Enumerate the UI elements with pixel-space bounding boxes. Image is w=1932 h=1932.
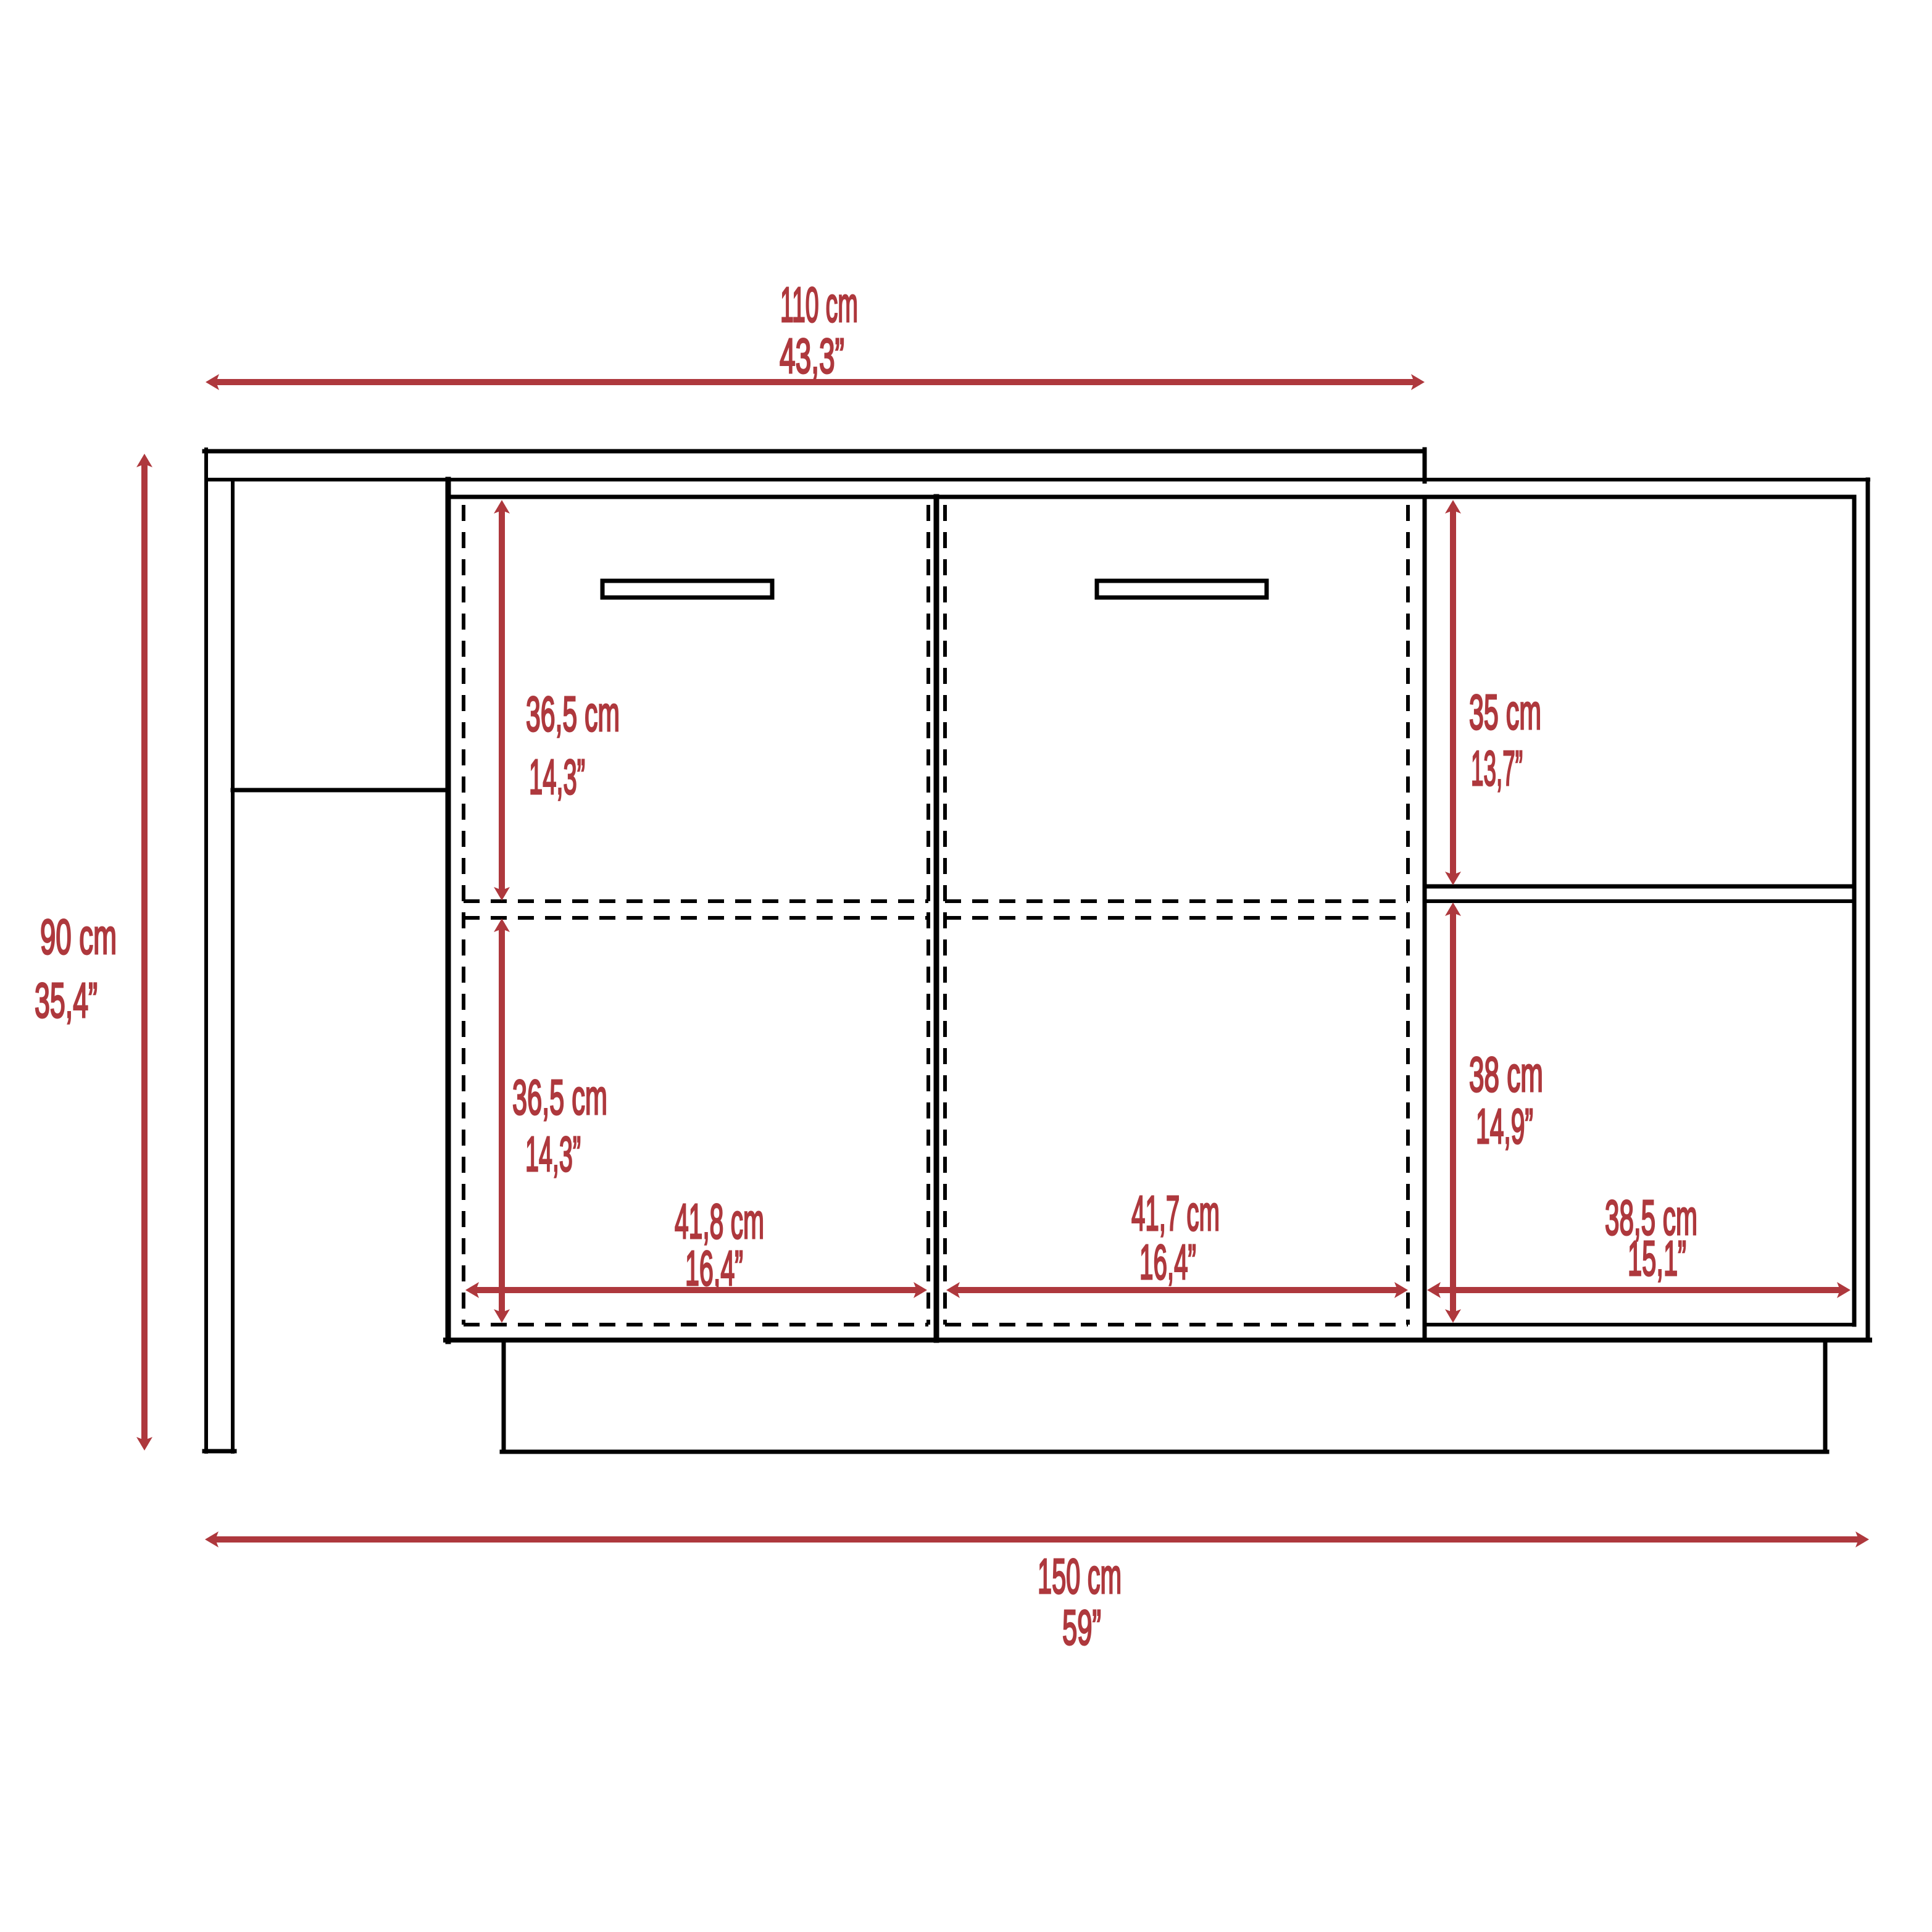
svg-text:35,4”: 35,4” [35,973,98,1028]
svg-text:59”: 59” [1062,1600,1101,1655]
svg-text:35 cm: 35 cm [1469,685,1541,739]
svg-text:36,5 cm: 36,5 cm [526,686,620,741]
svg-text:14,9”: 14,9” [1476,1099,1533,1154]
svg-text:41,7 cm: 41,7 cm [1131,1186,1220,1241]
svg-text:150 cm: 150 cm [1038,1549,1122,1604]
svg-text:38 cm: 38 cm [1469,1047,1543,1102]
svg-text:14,3”: 14,3” [529,749,585,804]
svg-text:43,3”: 43,3” [780,328,844,383]
svg-text:36,5 cm: 36,5 cm [512,1070,607,1125]
svg-text:90 cm: 90 cm [40,909,117,964]
svg-text:13,7”: 13,7” [1471,741,1523,796]
svg-text:16,4”: 16,4” [1139,1235,1196,1289]
svg-text:16,4”: 16,4” [685,1241,743,1296]
svg-text:15,1”: 15,1” [1628,1231,1686,1286]
svg-text:14,3”: 14,3” [525,1126,581,1181]
svg-text:110 cm: 110 cm [780,277,858,332]
